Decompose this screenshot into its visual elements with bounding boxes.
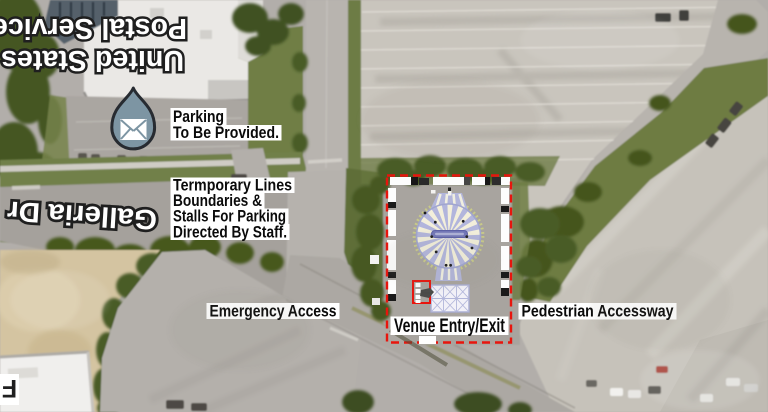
svg-text:United States: United States <box>1 44 184 76</box>
svg-text:F: F <box>2 374 17 402</box>
svg-text:Directed By Staff.: Directed By Staff. <box>173 223 287 241</box>
svg-text:Postal Service: Postal Service <box>0 12 187 44</box>
svg-text:Venue Entry/Exit: Venue Entry/Exit <box>394 316 505 337</box>
svg-text:To Be Provided.: To Be Provided. <box>173 124 279 142</box>
